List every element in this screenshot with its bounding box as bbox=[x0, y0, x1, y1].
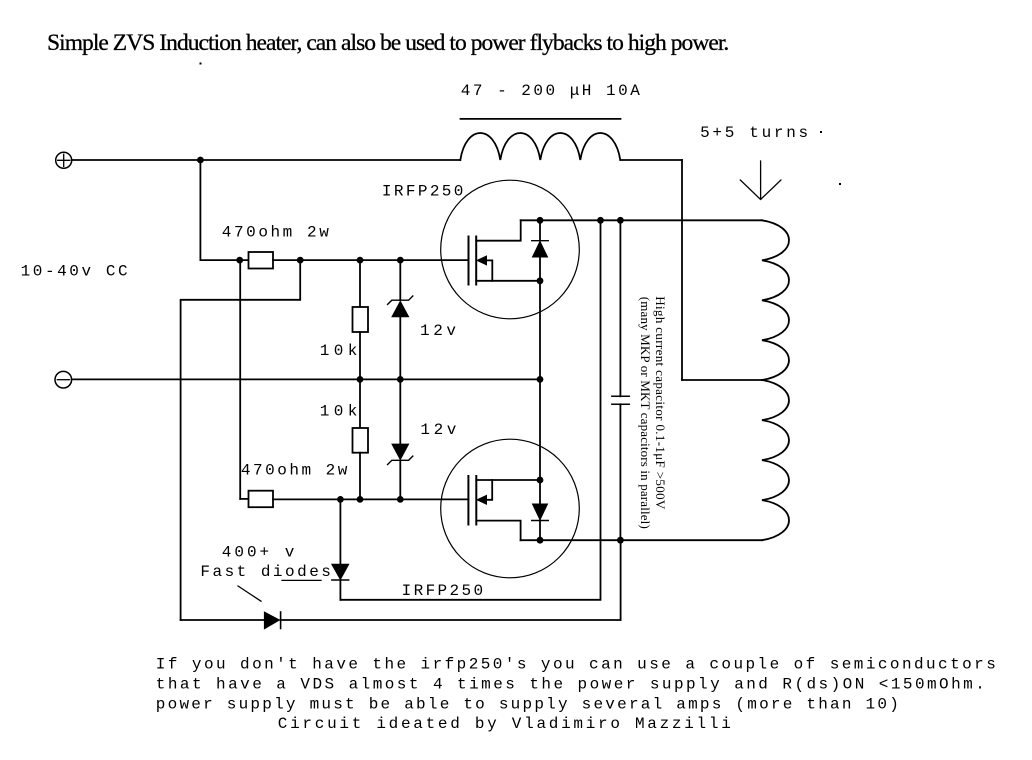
svg-text:IRFP250: IRFP250 bbox=[382, 182, 464, 200]
svg-text:10k: 10k bbox=[320, 403, 358, 421]
svg-text:(many MKP or MKT capacitors in: (many MKP or MKT capacitors in parallel) bbox=[638, 297, 653, 529]
svg-text:power supply must be able to s: power supply must be able to supply seve… bbox=[156, 696, 899, 714]
svg-text:470ohm 2w: 470ohm 2w bbox=[222, 224, 329, 242]
svg-text:470ohm 2w: 470ohm 2w bbox=[241, 462, 348, 480]
svg-text:IRFP250: IRFP250 bbox=[402, 582, 484, 600]
svg-text:12v: 12v bbox=[420, 421, 456, 439]
svg-text:Fast diodes: Fast diodes bbox=[200, 563, 331, 581]
svg-text:47 - 200 μH 10A: 47 - 200 μH 10A bbox=[461, 82, 640, 100]
svg-text:5+5 turns: 5+5 turns bbox=[700, 124, 808, 142]
svg-text:High current capacitor 0.1-1μF: High current capacitor 0.1-1μF >500V bbox=[653, 296, 668, 510]
svg-text:12v: 12v bbox=[420, 322, 456, 340]
svg-text:Circuit ideated by Vladimiro M: Circuit ideated by Vladimiro Mazzilli bbox=[278, 715, 731, 733]
svg-text:Simple ZVS Induction heater, c: Simple ZVS Induction heater, can also be… bbox=[47, 30, 728, 56]
svg-text:that have a VDS almost 4 times: that have a VDS almost 4 times the power… bbox=[156, 676, 985, 694]
svg-text:10-40v CC: 10-40v CC bbox=[21, 263, 128, 281]
svg-text:10k: 10k bbox=[320, 342, 358, 360]
